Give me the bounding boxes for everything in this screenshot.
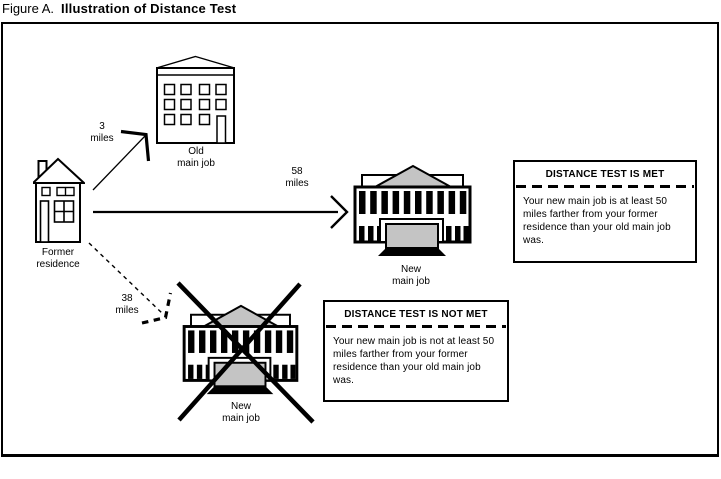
figure-a-distance-test: Figure A.Illustration of Distance Test [0, 0, 721, 479]
old-main-job-label: Old main job [166, 146, 226, 169]
distance-58-miles-label: 58 miles [276, 166, 318, 189]
former-residence-house [33, 157, 85, 245]
distance-test-met-text: Your new main job is at least 50 miles f… [515, 188, 695, 247]
figure-label: Figure A. [2, 1, 54, 16]
figure-title: Figure A.Illustration of Distance Test [2, 1, 236, 16]
new-main-job-building-not-met [181, 302, 299, 400]
distance-3-miles-label: 3 miles [83, 121, 121, 144]
distance-38-miles-label: 38 miles [106, 293, 148, 316]
figure-title-text: Illustration of Distance Test [61, 1, 236, 16]
new-main-job-building-met [352, 162, 472, 262]
former-residence-label: Former residence [18, 247, 98, 270]
distance-test-not-met-heading: DISTANCE TEST IS NOT MET [325, 302, 507, 325]
distance-test-met-heading: DISTANCE TEST IS MET [515, 162, 695, 185]
new-main-job-met-label: New main job [381, 264, 441, 287]
distance-test-not-met-box: DISTANCE TEST IS NOT MET Your new main j… [323, 300, 509, 402]
old-main-job-building [155, 54, 236, 145]
distance-test-not-met-text: Your new main job is not at least 50 mil… [325, 328, 507, 387]
distance-test-met-box: DISTANCE TEST IS MET Your new main job i… [513, 160, 697, 263]
new-main-job-not-met-label: New main job [211, 401, 271, 424]
